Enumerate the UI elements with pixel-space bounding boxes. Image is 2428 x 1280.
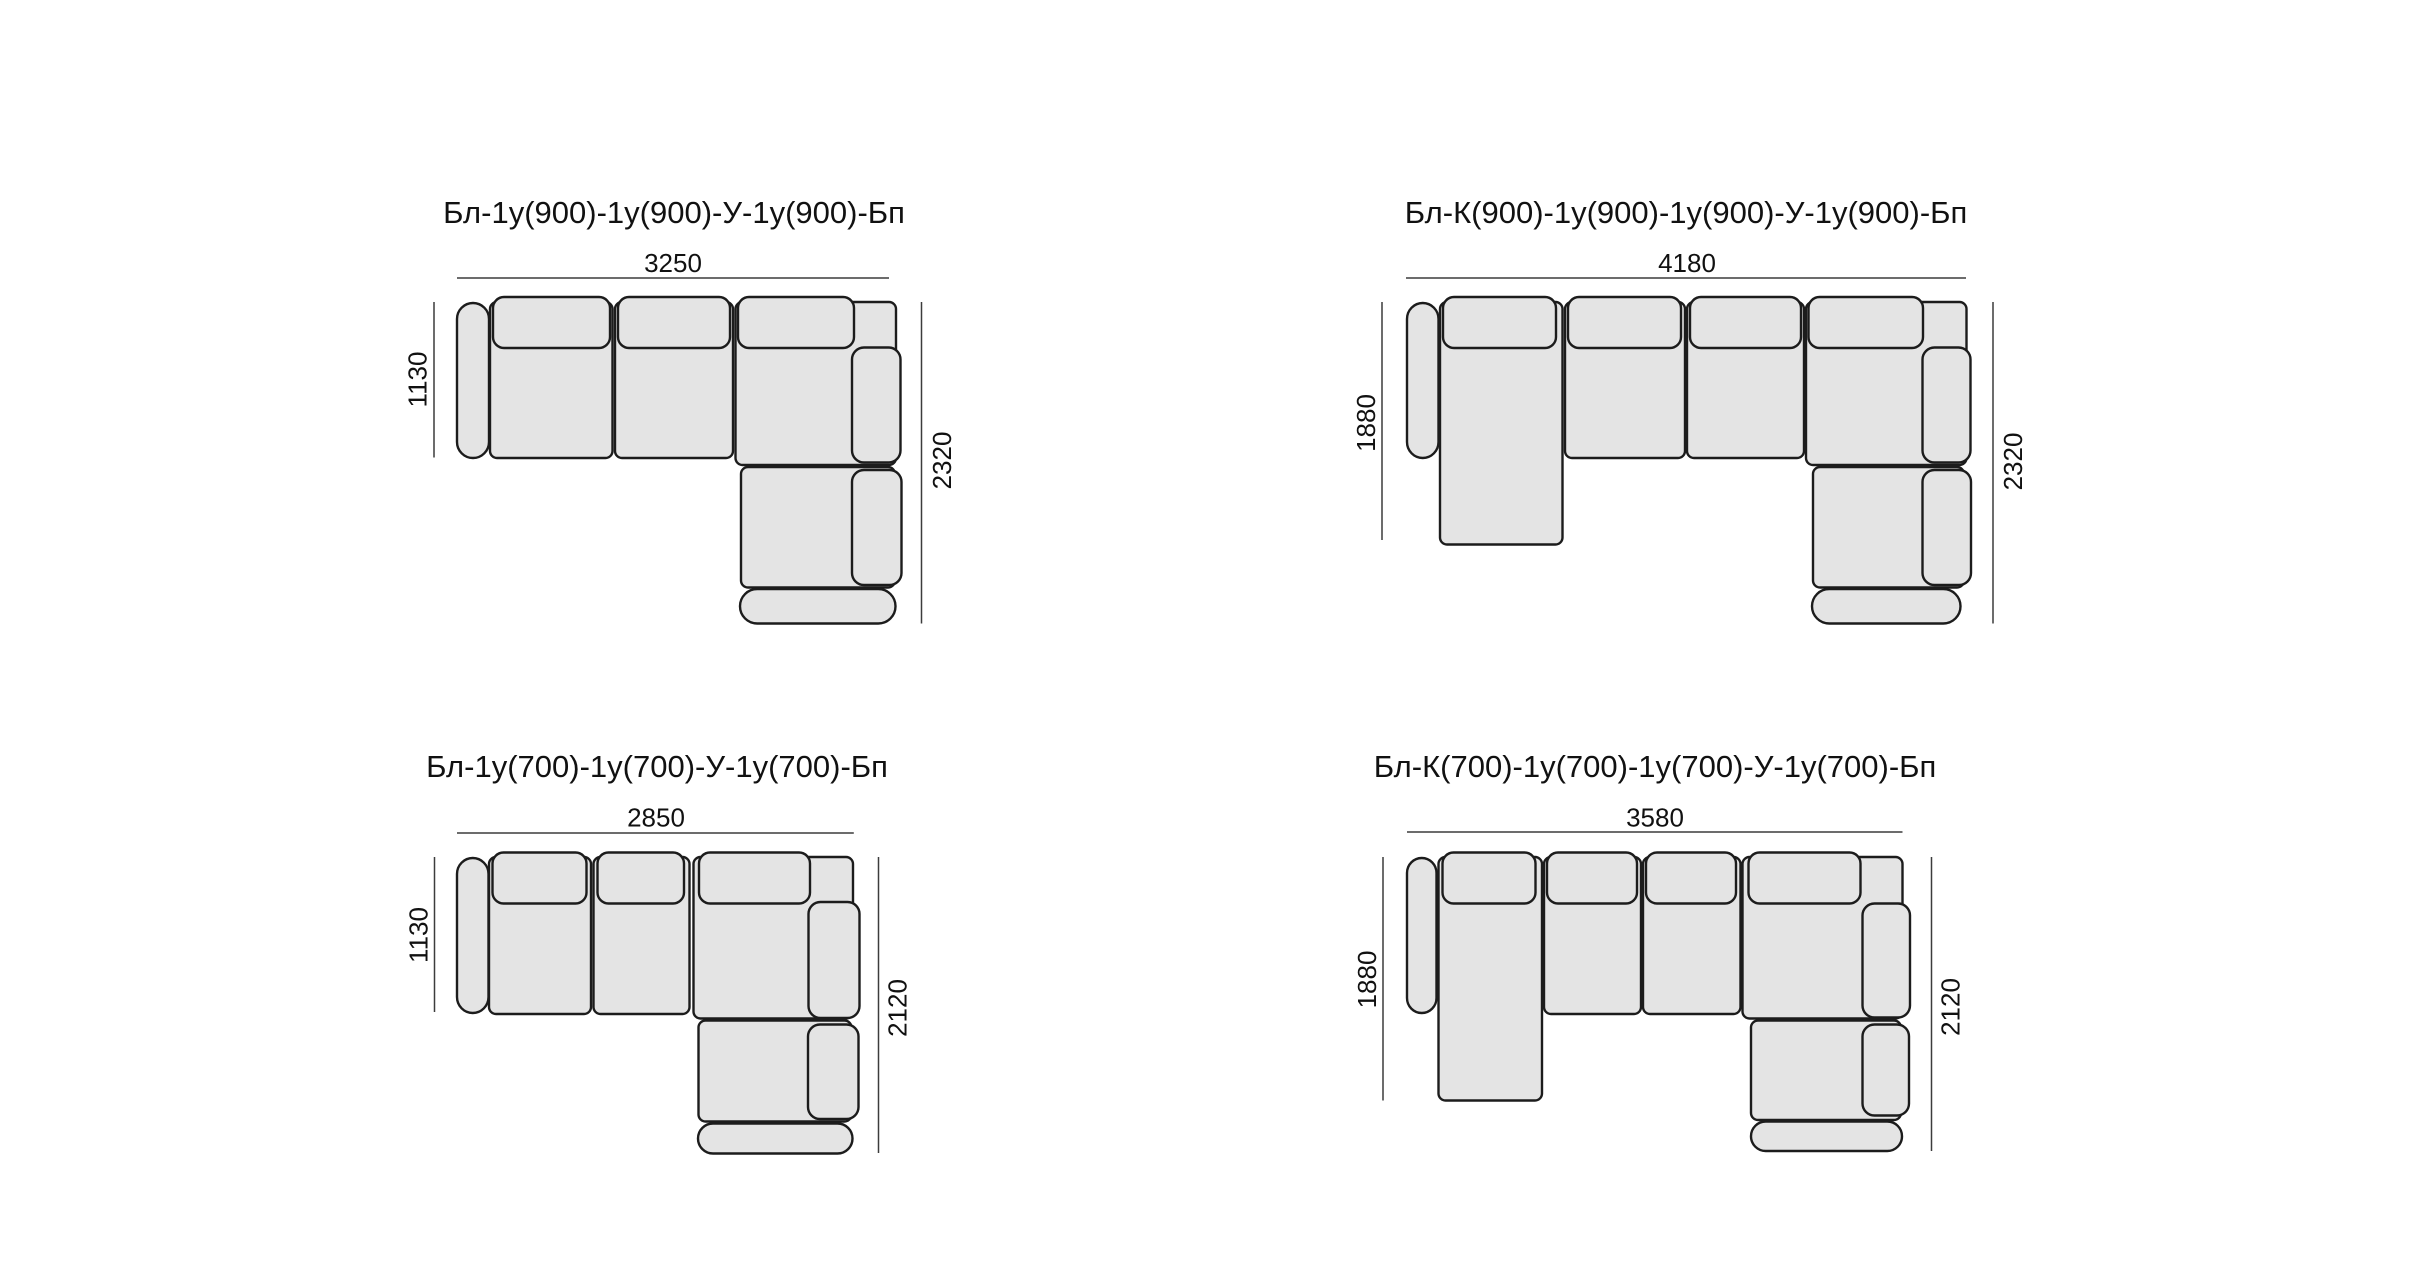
svg-text:1880: 1880 — [1352, 951, 1382, 1009]
svg-text:2320: 2320 — [1998, 433, 2028, 491]
svg-text:2850: 2850 — [627, 803, 685, 833]
svg-text:Бл-К(700)-1у(700)-1у(700)-У-1у: Бл-К(700)-1у(700)-1у(700)-У-1у(700)-Бп — [1374, 749, 1937, 784]
svg-text:2320: 2320 — [927, 432, 957, 490]
svg-text:2120: 2120 — [883, 979, 913, 1037]
svg-text:Бл-К(900)-1у(900)-1у(900)-У-1у: Бл-К(900)-1у(900)-1у(900)-У-1у(900)-Бп — [1405, 195, 1968, 230]
svg-text:Бл-1у(900)-1у(900)-У-1у(900)-Б: Бл-1у(900)-1у(900)-У-1у(900)-Бп — [443, 195, 905, 230]
svg-text:1130: 1130 — [404, 907, 434, 963]
svg-text:2120: 2120 — [1936, 978, 1966, 1036]
svg-text:1880: 1880 — [1351, 394, 1381, 452]
svg-text:4180: 4180 — [1658, 248, 1716, 278]
svg-text:Бл-1у(700)-1у(700)-У-1у(700)-Б: Бл-1у(700)-1у(700)-У-1у(700)-Бп — [426, 749, 888, 784]
svg-text:3580: 3580 — [1626, 803, 1684, 833]
svg-text:3250: 3250 — [644, 248, 702, 278]
svg-text:1130: 1130 — [403, 352, 433, 408]
